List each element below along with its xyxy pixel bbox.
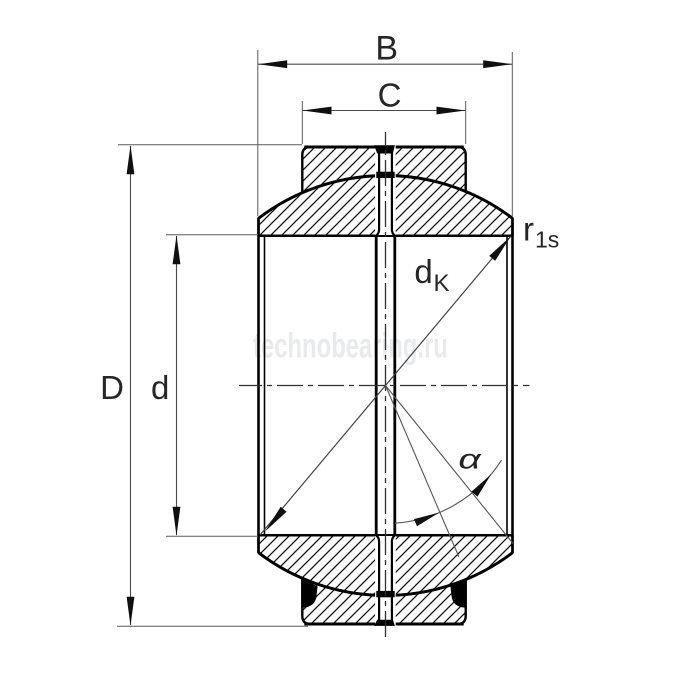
svg-text:α: α [458, 444, 482, 475]
svg-text:d: d [151, 369, 169, 406]
svg-text:C: C [378, 77, 402, 114]
svg-text:D: D [100, 369, 124, 406]
svg-text:d: d [414, 253, 432, 290]
svg-text:1s: 1s [535, 227, 559, 253]
svg-text:r: r [523, 211, 534, 248]
svg-text:K: K [433, 270, 449, 297]
svg-text:B: B [375, 30, 398, 68]
